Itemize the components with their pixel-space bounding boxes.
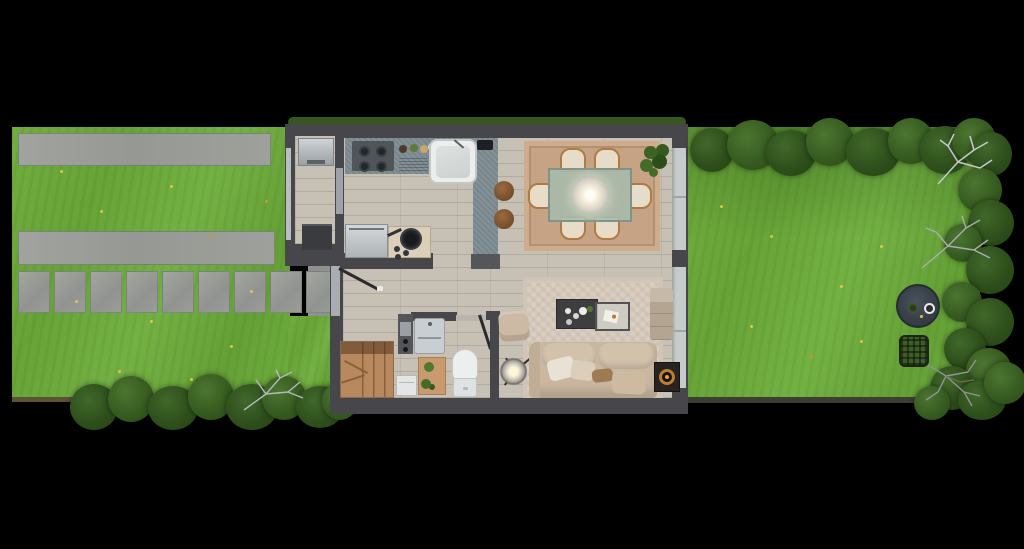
front-hedge-bush <box>108 376 154 422</box>
toilet-tank <box>453 378 477 397</box>
bar-stool <box>494 209 514 229</box>
storage-window <box>286 148 291 240</box>
paver <box>126 271 158 313</box>
paver <box>18 271 50 313</box>
kitchen-sink <box>429 139 477 184</box>
paver <box>198 271 230 313</box>
sofa-armrest <box>529 342 540 398</box>
glass-wall <box>672 138 686 398</box>
dishwasher-handle <box>349 228 384 230</box>
sofa-pillow <box>611 370 646 395</box>
glass-mullion <box>672 196 686 198</box>
staircase <box>340 341 394 398</box>
amber-flame <box>665 375 669 379</box>
back-dandelions <box>720 205 723 208</box>
lamp-glow <box>500 358 527 385</box>
paver <box>162 271 194 313</box>
glass-mullion <box>672 330 686 332</box>
glass-table-book <box>603 310 619 324</box>
front-dandelions <box>60 170 63 173</box>
storage-appliance-slot <box>307 160 325 164</box>
frying-pan <box>400 228 422 250</box>
drainboard <box>399 157 428 171</box>
counter-bowls <box>399 145 407 153</box>
dining-chair <box>630 183 652 209</box>
understair-appliance <box>396 375 417 396</box>
amber-bowl <box>659 369 675 385</box>
peninsula-end-wall <box>471 254 500 269</box>
storage-cabinet <box>302 224 332 250</box>
sink-basin <box>436 146 470 178</box>
armchair-pouf <box>498 310 530 342</box>
front-dry-branch <box>240 368 306 412</box>
sofa-pillow <box>591 368 613 383</box>
dishwasher <box>345 224 388 258</box>
table-plant <box>908 303 918 313</box>
bench-blanket <box>650 288 673 302</box>
wc-tall-cabinet <box>398 314 413 354</box>
toilet-button <box>463 387 468 390</box>
coffee-table-decor <box>565 308 571 314</box>
toaster <box>477 140 493 150</box>
glass-wall-frame-mid <box>672 250 686 267</box>
amber-side-table <box>654 362 680 392</box>
coffee-table-dark <box>556 299 598 329</box>
wc-cabinet-knobs <box>403 339 408 344</box>
understair-appliance-line <box>399 382 414 383</box>
washbasin <box>414 318 445 354</box>
paver <box>54 271 86 313</box>
glass-wall-frame-top <box>672 138 686 148</box>
book-accent <box>612 314 617 319</box>
gas-hob <box>352 141 394 171</box>
hob-burners <box>361 148 368 155</box>
paver <box>270 271 302 313</box>
cooker-knobs <box>394 246 400 252</box>
paver-path <box>18 271 338 313</box>
paver <box>90 271 122 313</box>
back-fence-line <box>688 397 940 403</box>
washbasin-line <box>418 337 441 339</box>
bar-stool <box>494 181 514 201</box>
dining-plant <box>644 146 657 159</box>
driveway-strip-1 <box>18 133 271 166</box>
storage-appliance <box>298 138 334 166</box>
driveway-strip-2 <box>18 231 275 265</box>
sofa-back-cushion <box>598 343 654 369</box>
dining-chair <box>528 183 550 209</box>
paver <box>234 271 266 313</box>
stair-upper-shadow <box>341 342 393 354</box>
pendant-lamp <box>571 176 609 214</box>
storage-door <box>336 168 343 214</box>
front-door-handle <box>377 286 383 291</box>
front-door-panel <box>331 266 340 316</box>
floor-plan-canvas <box>0 0 1024 549</box>
back-dry-branch <box>918 210 994 272</box>
back-dry-branch <box>930 128 996 188</box>
washbasin-faucet <box>428 322 432 326</box>
wc-cabinet-mirror <box>400 322 411 336</box>
wire-basket <box>899 335 929 367</box>
table-cup <box>924 303 935 314</box>
bistro-table <box>896 284 940 328</box>
floor-lamp <box>496 354 532 390</box>
coffee-table-glass <box>595 302 630 331</box>
wc-plant <box>424 362 434 372</box>
